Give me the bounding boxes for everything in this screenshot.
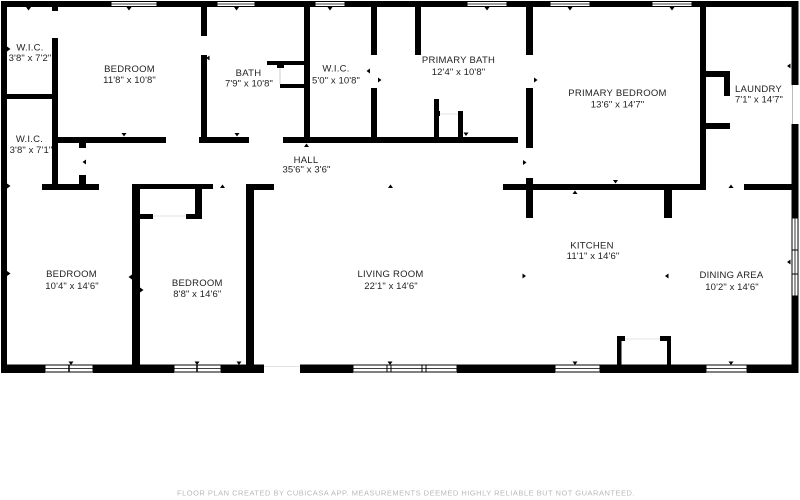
svg-text:LIVING ROOM: LIVING ROOM xyxy=(357,269,423,280)
svg-text:W.I.C.: W.I.C. xyxy=(16,43,43,54)
svg-text:BEDROOM: BEDROOM xyxy=(46,269,97,280)
svg-text:BEDROOM: BEDROOM xyxy=(172,278,223,289)
svg-text:10'2" x 14'6": 10'2" x 14'6" xyxy=(705,282,758,293)
svg-text:13'6" x 14'7": 13'6" x 14'7" xyxy=(591,100,644,111)
svg-text:KITCHEN: KITCHEN xyxy=(570,241,613,252)
svg-text:W.I.C.: W.I.C. xyxy=(322,64,349,75)
svg-text:22'1" x 14'6": 22'1" x 14'6" xyxy=(364,281,417,292)
svg-text:PRIMARY BEDROOM: PRIMARY BEDROOM xyxy=(568,88,666,99)
svg-text:3'8" x 7'1": 3'8" x 7'1" xyxy=(10,145,53,156)
svg-text:3'8" x 7'2": 3'8" x 7'2" xyxy=(9,53,52,64)
svg-text:10'4" x 14'6": 10'4" x 14'6" xyxy=(45,281,98,292)
svg-text:11'8" x 10'8": 11'8" x 10'8" xyxy=(103,75,156,86)
svg-text:PRIMARY BATH: PRIMARY BATH xyxy=(422,55,495,66)
svg-text:BEDROOM: BEDROOM xyxy=(104,64,155,75)
svg-text:W.I.C.: W.I.C. xyxy=(16,134,43,145)
svg-text:FLOOR PLAN CREATED BY CUBICASA: FLOOR PLAN CREATED BY CUBICASA APP. MEAS… xyxy=(177,489,635,498)
svg-text:7'1" x 14'7": 7'1" x 14'7" xyxy=(735,94,783,105)
svg-text:35'6" x 3'6": 35'6" x 3'6" xyxy=(282,165,330,176)
svg-text:11'1" x 14'6": 11'1" x 14'6" xyxy=(567,251,620,262)
svg-text:5'0" x 10'8": 5'0" x 10'8" xyxy=(312,76,360,87)
svg-text:8'8" x 14'6": 8'8" x 14'6" xyxy=(173,289,221,300)
svg-text:12'4" x 10'8": 12'4" x 10'8" xyxy=(432,67,485,78)
svg-text:DINING AREA: DINING AREA xyxy=(700,270,764,281)
svg-text:7'9" x 10'8": 7'9" x 10'8" xyxy=(225,79,273,90)
svg-text:BATH: BATH xyxy=(236,68,262,79)
